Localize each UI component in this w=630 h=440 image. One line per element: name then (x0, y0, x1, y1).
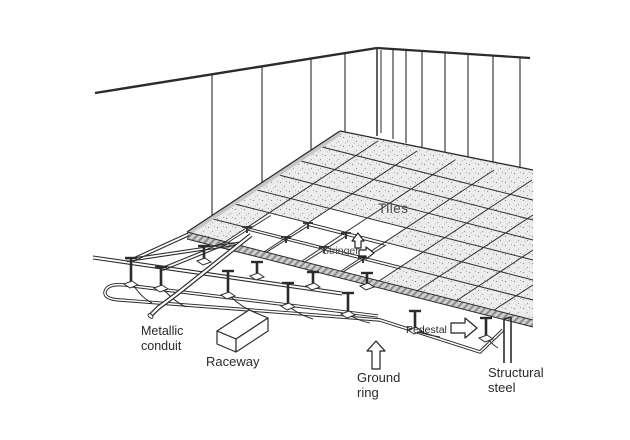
label-structural-steel-line1: Structural (488, 365, 544, 380)
label-ground-ring-line1: Ground (357, 370, 400, 385)
label-structural-steel-line2: steel (488, 380, 516, 395)
label-ground-ring-line2: ring (357, 385, 379, 400)
diagram-canvas: Tiles Stringer Pedestal Metallic conduit… (0, 0, 630, 440)
raised-floor-diagram: Tiles Stringer Pedestal Metallic conduit… (0, 0, 630, 440)
label-raceway: Raceway (206, 354, 260, 369)
label-tiles: Tiles (378, 201, 409, 216)
label-pedestal: Pedestal (406, 324, 447, 336)
label-stringer: Stringer (322, 245, 359, 257)
label-metallic-conduit-line1: Metallic (141, 324, 183, 338)
label-metallic-conduit-line2: conduit (141, 339, 182, 353)
